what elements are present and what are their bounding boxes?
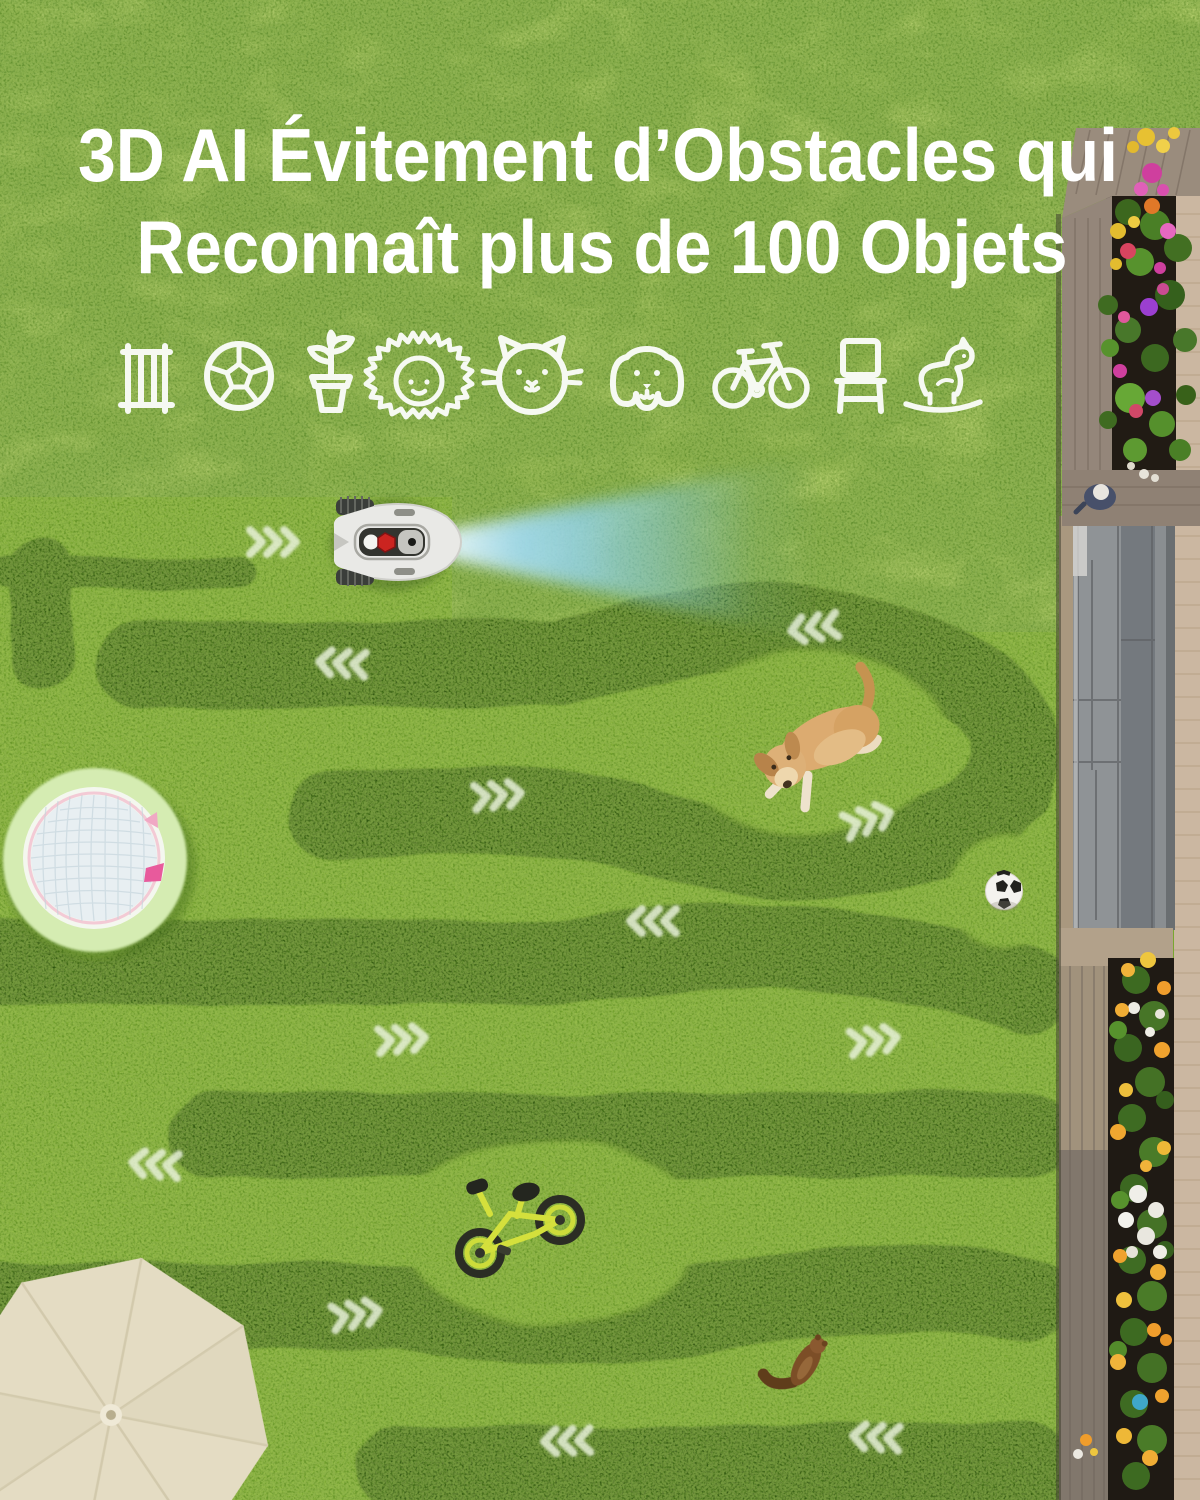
svg-text:Reconnaît plus de 100 Objets: Reconnaît plus de 100 Objets [137,205,1068,289]
svg-text:3D AI Évitement d’Obstacles qu: 3D AI Évitement d’Obstacles qui [78,113,1118,197]
